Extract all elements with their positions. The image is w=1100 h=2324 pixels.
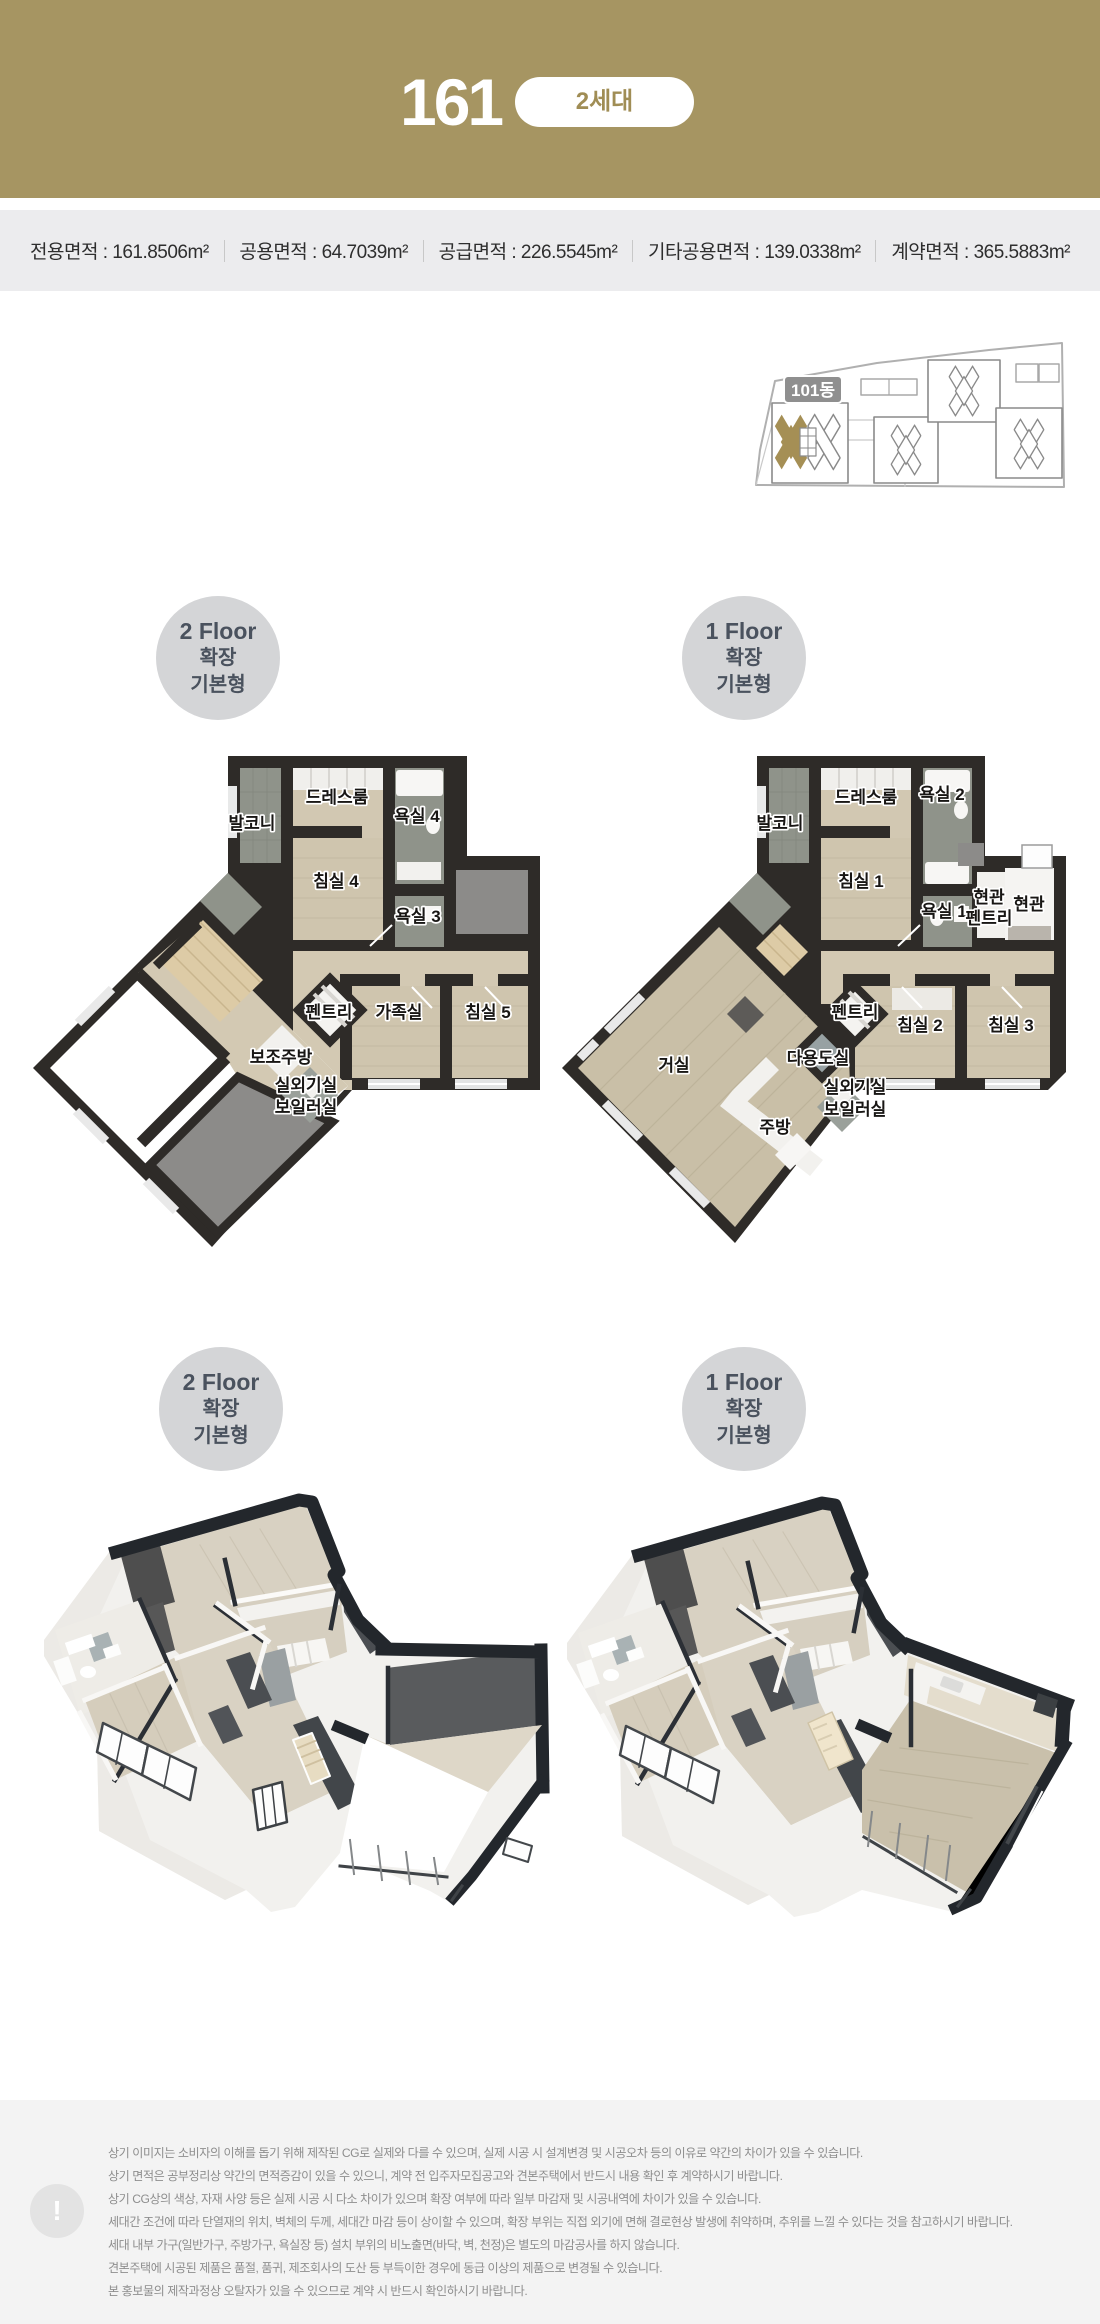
svg-text:침실 2: 침실 2: [897, 1015, 942, 1035]
svg-text:드레스룸: 드레스룸: [835, 788, 898, 807]
svg-text:욕실 2: 욕실 2: [919, 785, 964, 804]
svg-text:욕실 3: 욕실 3: [395, 907, 440, 926]
svg-text:주방: 주방: [759, 1118, 791, 1137]
svg-text:실외기실: 실외기실: [275, 1076, 338, 1095]
svg-text:실외기실: 실외기실: [824, 1078, 887, 1097]
svg-text:펜트리: 펜트리: [306, 1003, 353, 1022]
svg-text:발코니: 발코니: [229, 814, 276, 833]
svg-text:보조주방: 보조주방: [250, 1048, 313, 1067]
svg-text:현관: 현관: [973, 888, 1005, 907]
svg-text:101동: 101동: [791, 381, 835, 400]
svg-text:침실 5: 침실 5: [465, 1002, 510, 1022]
svg-text:펜트리: 펜트리: [832, 1003, 879, 1022]
svg-text:가족실: 가족실: [376, 1003, 423, 1022]
svg-text:욕실 1: 욕실 1: [921, 902, 966, 921]
svg-text:거실: 거실: [658, 1056, 689, 1075]
svg-text:발코니: 발코니: [757, 814, 804, 833]
svg-text:침실 3: 침실 3: [988, 1015, 1033, 1035]
svg-text:다용도실: 다용도실: [787, 1049, 850, 1068]
svg-text:보일러실: 보일러실: [275, 1098, 338, 1117]
svg-text:드레스룸: 드레스룸: [306, 788, 369, 807]
svg-text:침실 1: 침실 1: [838, 871, 883, 891]
svg-text:보일러실: 보일러실: [824, 1100, 887, 1119]
svg-text:현관: 현관: [1013, 895, 1045, 914]
svg-text:펜트리: 펜트리: [966, 909, 1013, 928]
svg-text:침실 4: 침실 4: [313, 871, 359, 891]
svg-text:욕실 4: 욕실 4: [394, 807, 440, 826]
